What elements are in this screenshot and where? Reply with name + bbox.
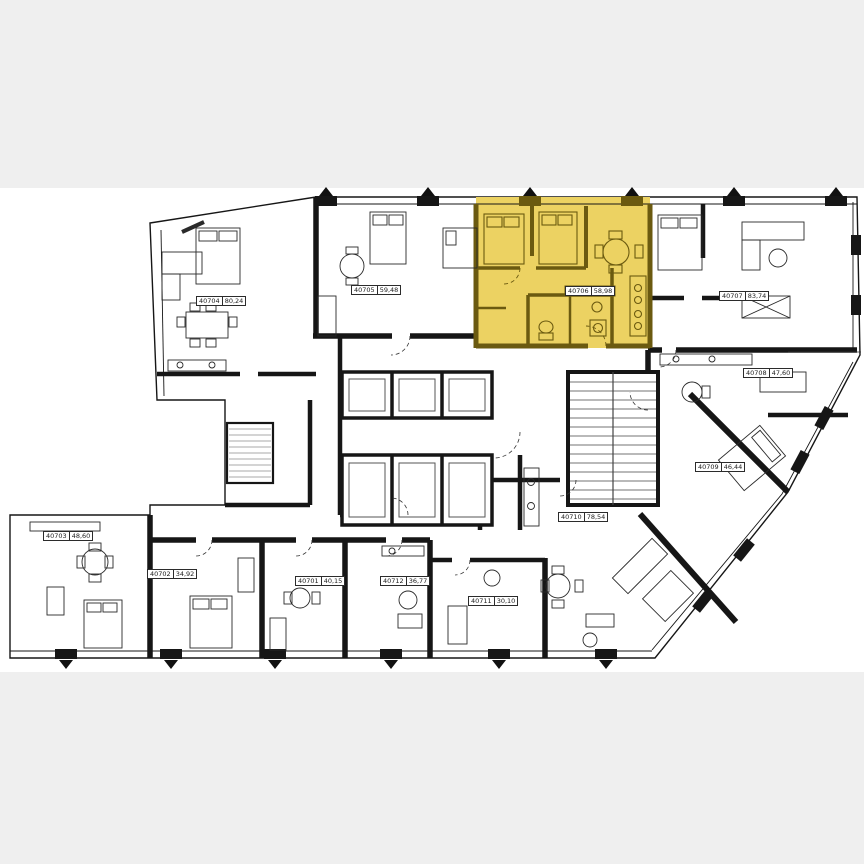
apartment-area: 40,15: [322, 577, 345, 585]
apartment-label-40706-selected[interactable]: 40706 58,98: [565, 286, 615, 296]
apartment-number: 40706: [566, 287, 592, 295]
apartment-label-40709[interactable]: 40709 46,44: [695, 462, 745, 472]
apartment-label-40708[interactable]: 40708 47,60: [743, 368, 793, 378]
apartment-label-40712[interactable]: 40712 36,77: [380, 576, 430, 586]
apartment-label-40705[interactable]: 40705 59,48: [351, 285, 401, 295]
apartment-area: 30,10: [495, 597, 518, 605]
apartment-number: 40708: [744, 369, 770, 377]
stairwell: [568, 372, 658, 505]
building-outline: [10, 197, 860, 658]
apartment-label-40702[interactable]: 40702 34,92: [147, 569, 197, 579]
apartment-area: 48,60: [70, 532, 93, 540]
apartment-area: 58,98: [592, 287, 615, 295]
apartment-number: 40707: [720, 292, 746, 300]
apartment-label-40707[interactable]: 40707 83,74: [719, 291, 769, 301]
secondary-stair: [227, 423, 273, 483]
apartment-number: 40711: [469, 597, 495, 605]
bottom-margin-band: [0, 672, 864, 864]
apartment-number: 40710: [559, 513, 585, 521]
apartment-area: 78,54: [585, 513, 608, 521]
apartment-area: 83,74: [746, 292, 769, 300]
apartment-area: 46,44: [722, 463, 745, 471]
apartment-number: 40703: [44, 532, 70, 540]
apartment-number: 40705: [352, 286, 378, 294]
apartment-label-40704[interactable]: 40704 80,24: [196, 296, 246, 306]
apartment-label-40710[interactable]: 40710 78,54: [558, 512, 608, 522]
apartment-area: 34,92: [174, 570, 197, 578]
apartment-label-40701[interactable]: 40701 40,15: [295, 576, 345, 586]
apartment-number: 40712: [381, 577, 407, 585]
apartment-area: 59,48: [378, 286, 401, 294]
apartment-number: 40701: [296, 577, 322, 585]
apartment-label-40703[interactable]: 40703 48,60: [43, 531, 93, 541]
floor-plan-viewer: 40701 40,15 40702 34,92 40703 48,60 4070…: [0, 0, 864, 864]
top-margin-band: [0, 0, 864, 188]
apartment-area: 80,24: [223, 297, 246, 305]
floor-plan-drawing: [0, 0, 864, 864]
apartment-area: 36,77: [407, 577, 430, 585]
apartment-number: 40704: [197, 297, 223, 305]
apartment-area: 47,60: [770, 369, 793, 377]
apartment-number: 40702: [148, 570, 174, 578]
apartment-number: 40709: [696, 463, 722, 471]
apartment-label-40711[interactable]: 40711 30,10: [468, 596, 518, 606]
